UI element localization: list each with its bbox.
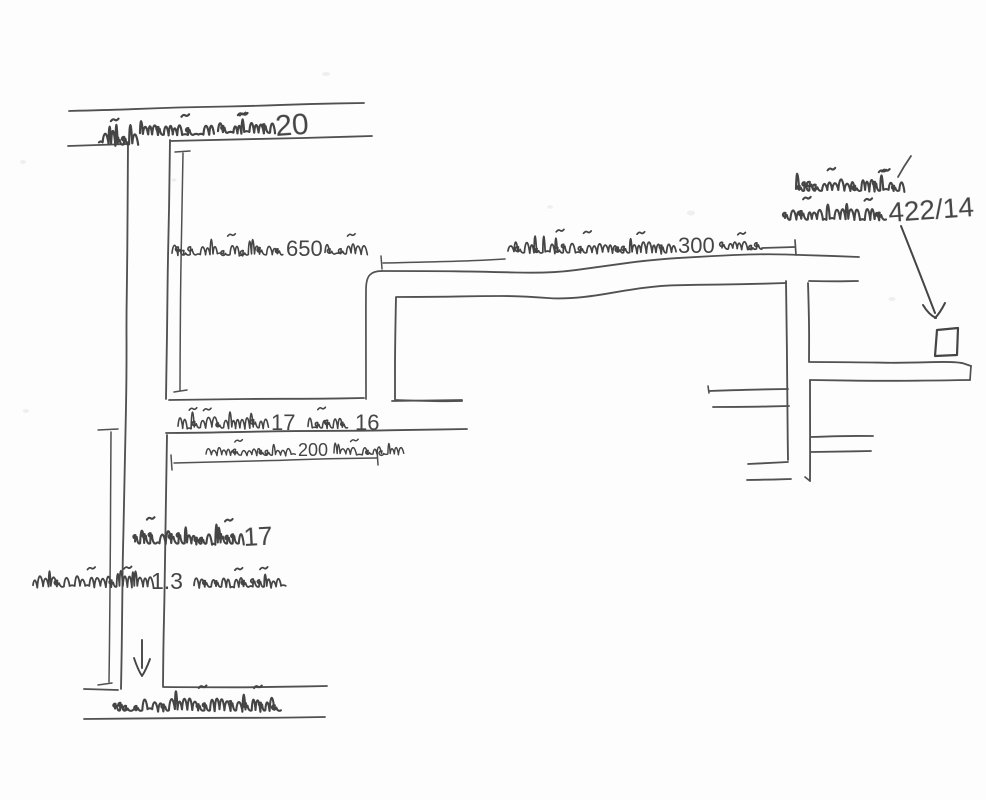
svg-text:1.3: 1.3: [151, 568, 183, 594]
svg-text:200: 200: [298, 440, 328, 460]
svg-text:16: 16: [355, 410, 379, 435]
svg-text:300: 300: [678, 233, 715, 258]
svg-text:17: 17: [243, 521, 273, 552]
svg-text:17: 17: [271, 410, 295, 435]
svg-text:422/14: 422/14: [887, 191, 975, 228]
svg-text:650: 650: [286, 236, 323, 261]
svg-text:20: 20: [274, 108, 310, 143]
